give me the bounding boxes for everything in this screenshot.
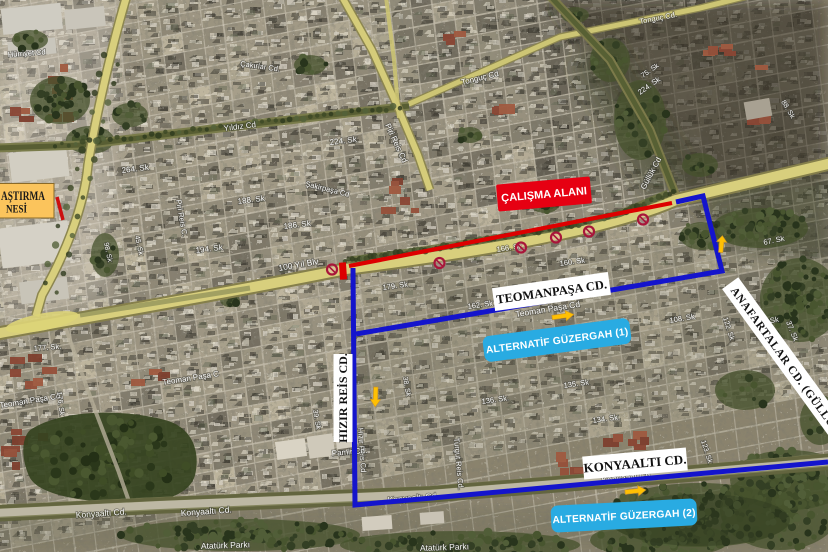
svg-text:Atatürk Parkı: Atatürk Parkı: [201, 539, 250, 551]
svg-text:Atatürk Parkı: Atatürk Parkı: [420, 541, 469, 552]
svg-text:HIZIR REİS CD.: HIZIR REİS CD.: [336, 353, 350, 443]
svg-text:AŞTIRMA: AŞTIRMA: [1, 188, 45, 203]
svg-text:NESİ: NESİ: [6, 202, 27, 216]
